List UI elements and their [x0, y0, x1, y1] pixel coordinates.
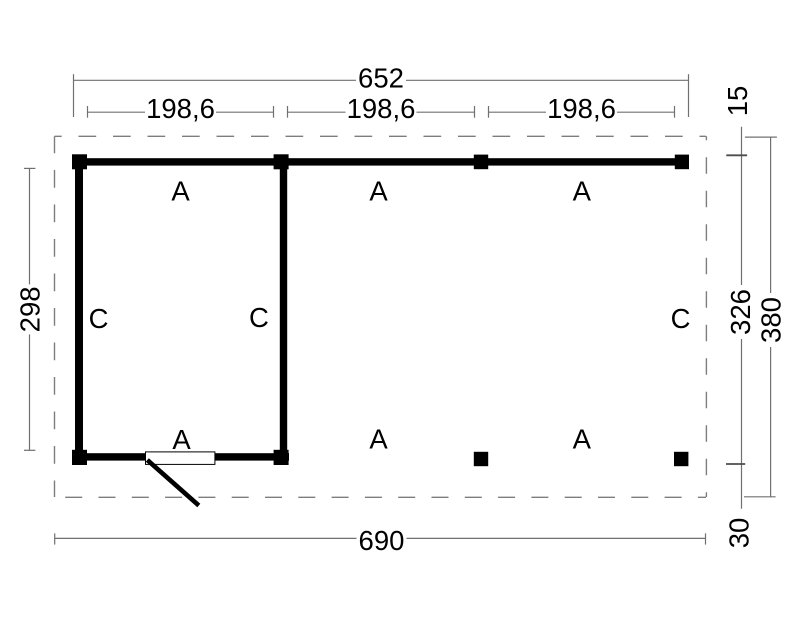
svg-text:C: C: [249, 302, 269, 333]
svg-text:A: A: [171, 175, 190, 206]
svg-text:198,6: 198,6: [547, 93, 616, 124]
svg-text:298: 298: [15, 286, 46, 332]
svg-text:A: A: [573, 424, 592, 455]
svg-text:15: 15: [722, 86, 753, 117]
svg-text:326: 326: [725, 289, 756, 335]
svg-text:C: C: [89, 303, 109, 334]
svg-text:690: 690: [359, 525, 405, 556]
svg-text:198,6: 198,6: [347, 93, 416, 124]
svg-text:30: 30: [724, 518, 755, 549]
svg-text:380: 380: [755, 297, 786, 343]
svg-text:A: A: [369, 175, 388, 206]
svg-text:A: A: [573, 175, 592, 206]
svg-text:C: C: [671, 303, 691, 334]
svg-text:198,6: 198,6: [146, 93, 215, 124]
svg-text:A: A: [172, 424, 191, 455]
svg-text:652: 652: [358, 62, 404, 93]
svg-text:A: A: [369, 424, 388, 455]
